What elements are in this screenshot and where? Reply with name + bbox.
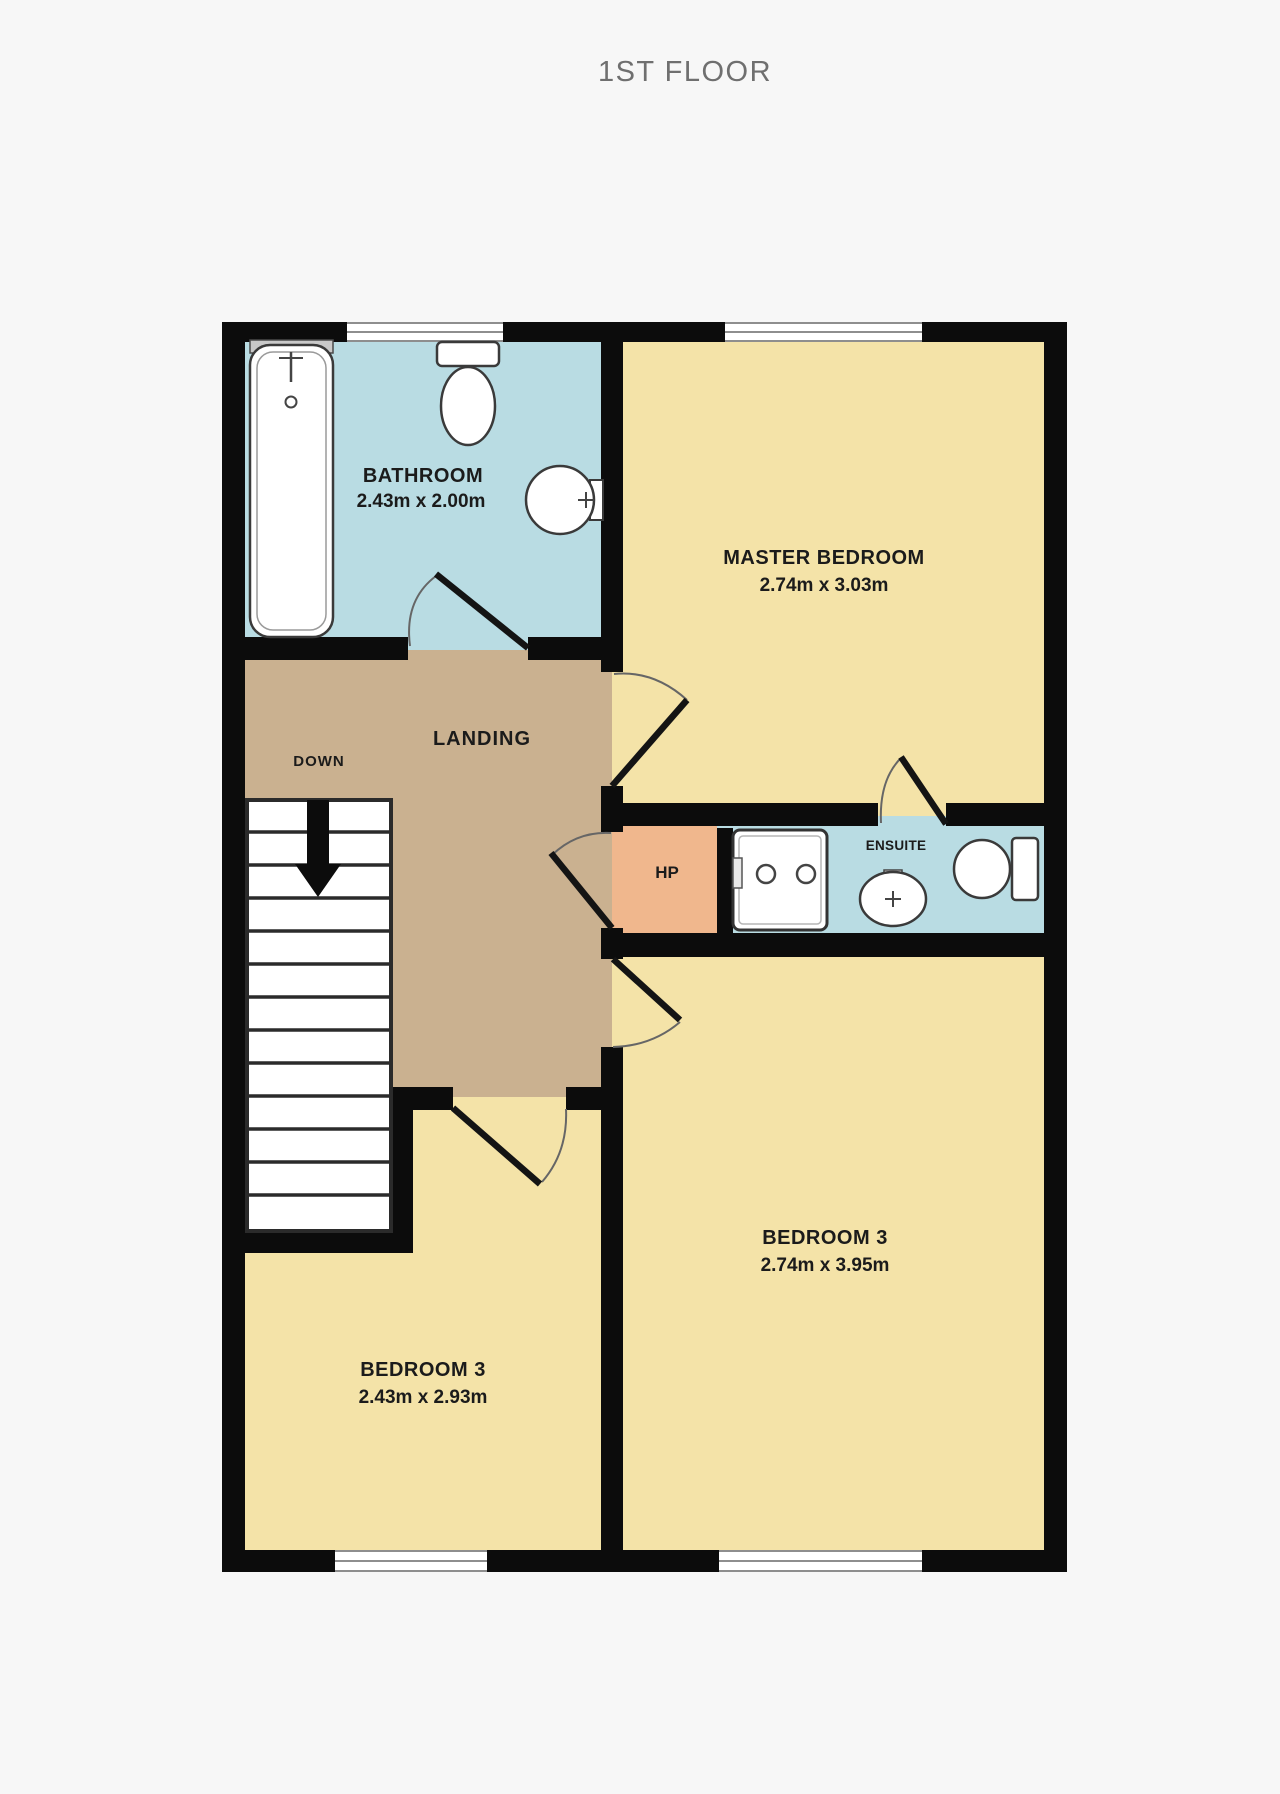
label-bedroom3-left-name: BEDROOM 3 (360, 1360, 486, 1380)
door-ensuite (881, 757, 946, 824)
label-bathroom-dims: 2.43m x 2.00m (357, 492, 486, 511)
toilet-bathroom (437, 342, 499, 445)
stairs (247, 800, 391, 1231)
bathtub (250, 340, 333, 637)
label-bedroom3-left-dims: 2.43m x 2.93m (359, 1388, 488, 1407)
label-bedroom3-right-name: BEDROOM 3 (762, 1228, 888, 1248)
door-bedroom3-left (453, 1108, 566, 1184)
sink-ensuite (860, 870, 926, 926)
label-bathroom-name: BATHROOM (363, 466, 483, 486)
label-bedroom3-right-dims: 2.74m x 3.95m (761, 1256, 890, 1275)
label-stairs-down: DOWN (293, 754, 345, 769)
door-bathroom (409, 574, 528, 648)
stairs-down-arrow-icon (295, 800, 341, 897)
door-hp-closet (551, 833, 612, 928)
sink-bathroom (526, 466, 603, 534)
label-landing: LANDING (433, 729, 531, 749)
door-master-bedroom (612, 674, 687, 786)
fixtures-overlay (0, 0, 1280, 1794)
door-bedroom3-right (613, 959, 680, 1047)
floor-plan: 1ST FLOOR (0, 0, 1280, 1794)
label-master-bedroom-dims: 2.74m x 3.03m (760, 576, 889, 595)
label-master-bedroom-name: MASTER BEDROOM (723, 548, 924, 568)
shower (733, 830, 827, 930)
label-ensuite: ENSUITE (866, 839, 927, 853)
toilet-ensuite (954, 838, 1038, 900)
label-hp: HP (655, 864, 679, 881)
